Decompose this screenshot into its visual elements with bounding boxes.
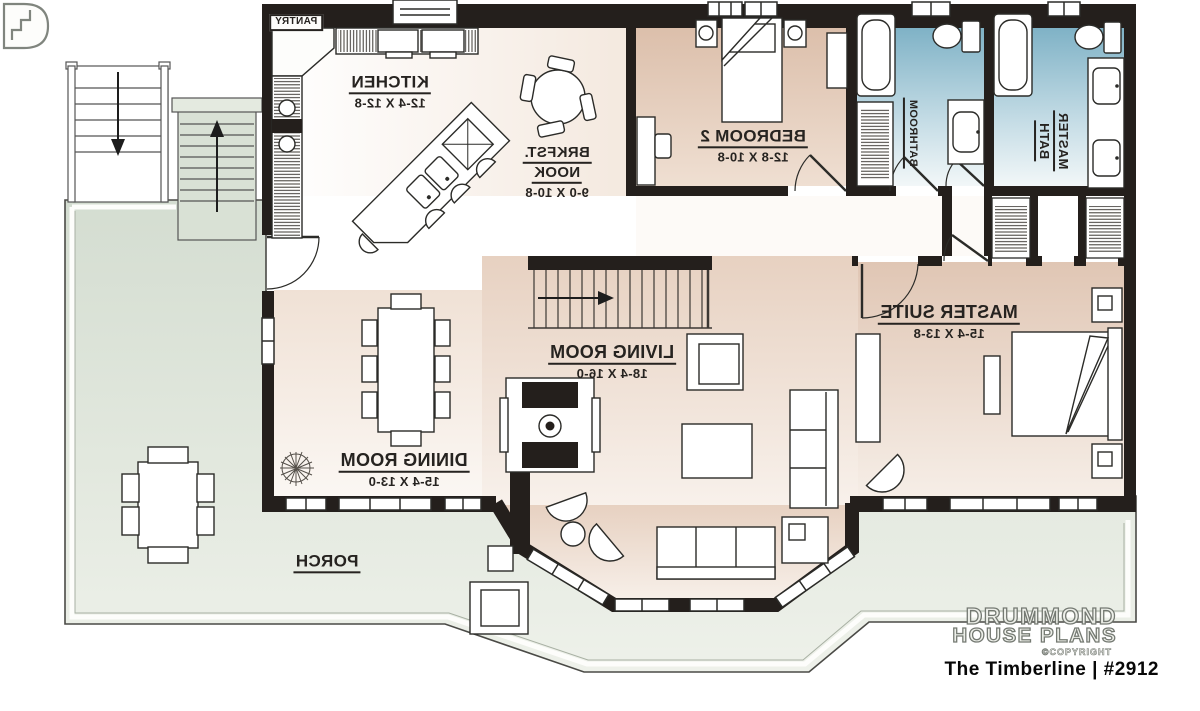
room-label-kitchen: KITCHEN 12-4 X 12-8 [349, 73, 431, 110]
floor-plan: PANTRY KITCHEN 12-4 X 12-8 BRKFST. NOOK … [0, 0, 1200, 711]
dining-chair [362, 392, 377, 418]
dining-chair [391, 431, 421, 446]
porch-chair [122, 507, 139, 535]
bay-sofa [657, 527, 775, 579]
porch-chair [197, 474, 214, 502]
exterior-stairs-up [172, 98, 262, 240]
room-label-living-room: LIVING ROOM 18-4 X 16-0 [548, 343, 676, 381]
fireplace-icon [500, 378, 600, 472]
room-label-brkfst-nook: BRKFST. NOOK 9-0 X 10-8 [522, 144, 591, 200]
porch-side-table [488, 546, 513, 571]
counter-appliance [422, 30, 464, 52]
dining-chair [435, 320, 450, 346]
bed [722, 18, 782, 122]
dining-chair [362, 320, 377, 346]
stair-wall [528, 256, 712, 270]
porch-chair [148, 447, 188, 463]
desk-chair [655, 134, 671, 158]
exterior-stairs-down [66, 62, 170, 202]
brand-wordmark: DRUMMOND HOUSE PLANS [952, 606, 1117, 646]
porch-armchair [470, 582, 528, 634]
wall-oven [279, 100, 295, 116]
bed [1012, 328, 1122, 440]
dining-chair [391, 294, 421, 309]
cooktop [378, 30, 418, 52]
room-label-porch: PORCH [294, 552, 361, 573]
porch-chair [197, 507, 214, 535]
headboard [1108, 328, 1122, 440]
room-label-dining-room: DINING ROOM 15-4 X 13-0 [338, 451, 469, 489]
drummond-logo-icon [0, 0, 52, 54]
room-label-master-bath: MASTER BATH [1034, 111, 1072, 172]
fireplace-wall-stub [510, 470, 530, 554]
desk [637, 117, 655, 185]
sink [953, 112, 979, 152]
bench [984, 356, 1000, 414]
dresser [856, 334, 880, 442]
room-label-bathroom: BATHROOM [903, 97, 923, 168]
kitchen-window [393, 0, 457, 24]
range [272, 119, 302, 133]
dining-chair [435, 392, 450, 418]
porch-chair [148, 547, 188, 563]
wardrobe [827, 33, 847, 88]
pantry-label-text: PANTRY [269, 14, 323, 31]
armchair [687, 334, 743, 390]
round-side-table [561, 522, 585, 546]
dining-chair [435, 356, 450, 382]
room-label-master-suite: MASTER SUITE 15-4 X 13-8 [878, 303, 1020, 341]
room-label-pantry: PANTRY [269, 11, 323, 31]
porch-chair [122, 474, 139, 502]
sofa [790, 390, 838, 508]
room-label-bedroom2: BEDROOM 2 12-8 X 10-8 [698, 127, 808, 164]
end-table [782, 517, 828, 563]
dining-chair [362, 356, 377, 382]
plan-title: The Timberline | #2912 [945, 659, 1160, 681]
copyright-text: ©COPYRIGHT [1042, 647, 1112, 657]
linen-closet [857, 102, 893, 186]
coffee-table [682, 424, 752, 478]
